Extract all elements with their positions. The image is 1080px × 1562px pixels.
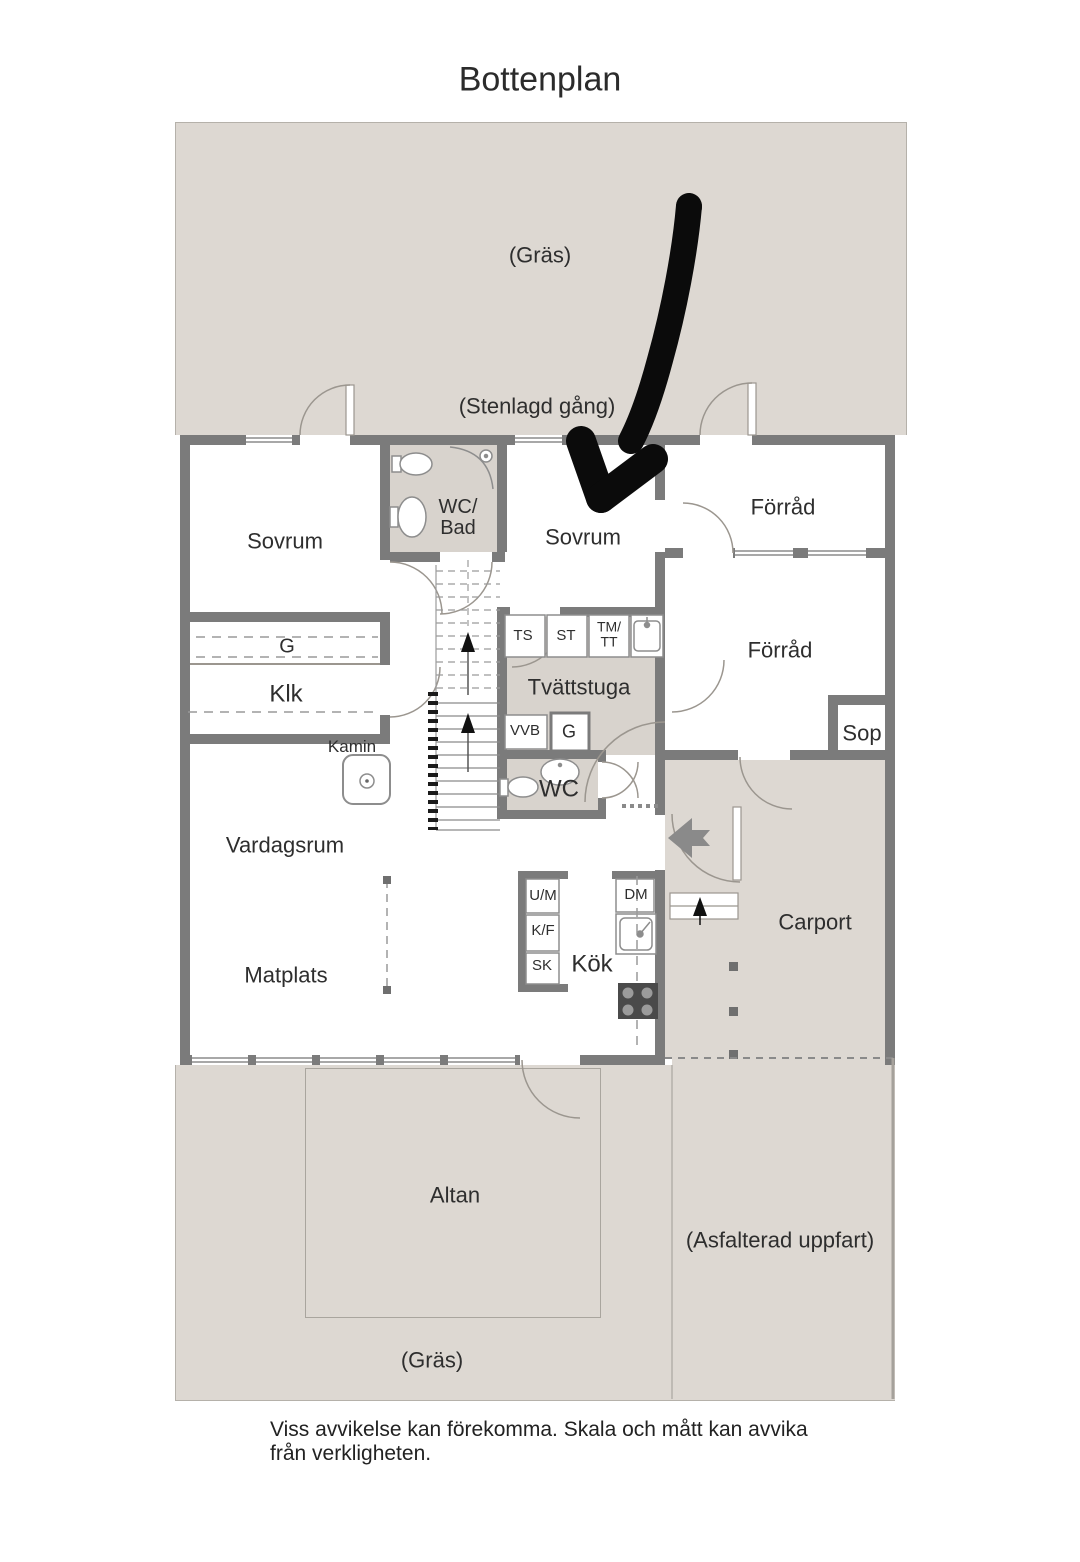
room-label-living: Vardagsrum — [226, 833, 344, 856]
unit-label-dm: DM — [624, 887, 647, 903]
unit-label-um: U/M — [529, 888, 557, 904]
area-label-carport: Carport — [778, 910, 851, 933]
area-label-grass-bottom: (Gräs) — [401, 1348, 463, 1371]
room-label-storage-upper: Förråd — [751, 495, 816, 518]
house-wing-body — [665, 435, 895, 760]
area-label-driveway: (Asfalterad uppfart) — [686, 1228, 874, 1251]
unit-label-kf: K/F — [531, 923, 554, 939]
room-label-bathroom-line1: WC/ — [439, 497, 478, 518]
unit-label-tmtt-line1: TM/ — [597, 619, 621, 634]
room-label-dining: Matplats — [244, 963, 327, 986]
unit-label-sk: SK — [532, 958, 552, 974]
room-label-bedroom-right: Sovrum — [545, 525, 621, 548]
unit-label-ts: TS — [513, 628, 532, 644]
room-label-wardrobe: G — [279, 637, 295, 658]
unit-label-st: ST — [556, 628, 575, 644]
room-label-bathroom-line2: Bad — [439, 518, 478, 539]
room-label-laundry: Tvättstuga — [528, 675, 631, 698]
unit-label-tmtt-line2: TT — [597, 634, 621, 649]
disclaimer-text: Viss avvikelse kan förekomma. Skala och … — [270, 1418, 810, 1466]
unit-label-g: G — [562, 723, 576, 742]
area-label-patio: Altan — [430, 1183, 480, 1206]
room-label-fireplace: Kamin — [328, 738, 376, 756]
room-label-storage-lower: Förråd — [748, 638, 813, 661]
room-label-closet: Klk — [269, 681, 302, 706]
floorplan-page: Bottenplan — [0, 0, 1080, 1562]
unit-label-vvb: VVB — [510, 723, 540, 739]
room-label-refuse: Sop — [842, 721, 881, 744]
unit-label-tmtt: TM/ TT — [597, 619, 621, 648]
room-label-bedroom-left: Sovrum — [247, 529, 323, 552]
room-label-kitchen: Kök — [571, 951, 612, 976]
room-label-bathroom: WC/ Bad — [439, 497, 478, 539]
area-label-grass-top: (Gräs) — [509, 243, 571, 266]
area-label-stone-path: (Stenlagd gång) — [459, 394, 616, 417]
page-title: Bottenplan — [459, 61, 622, 100]
room-label-wc: WC — [539, 776, 579, 801]
